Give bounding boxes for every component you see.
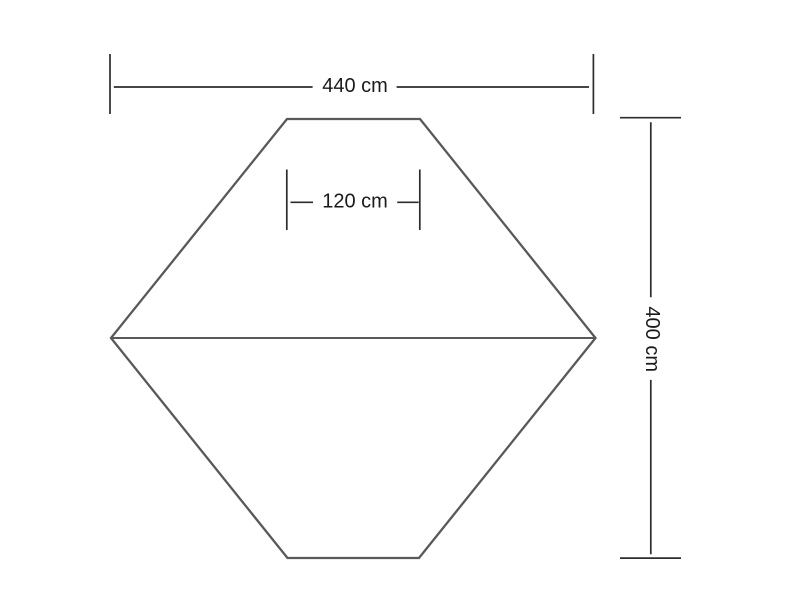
svg-text:400 cm: 400 cm — [641, 306, 663, 372]
svg-text:440 cm: 440 cm — [322, 75, 388, 97]
svg-text:120 cm: 120 cm — [322, 191, 388, 213]
